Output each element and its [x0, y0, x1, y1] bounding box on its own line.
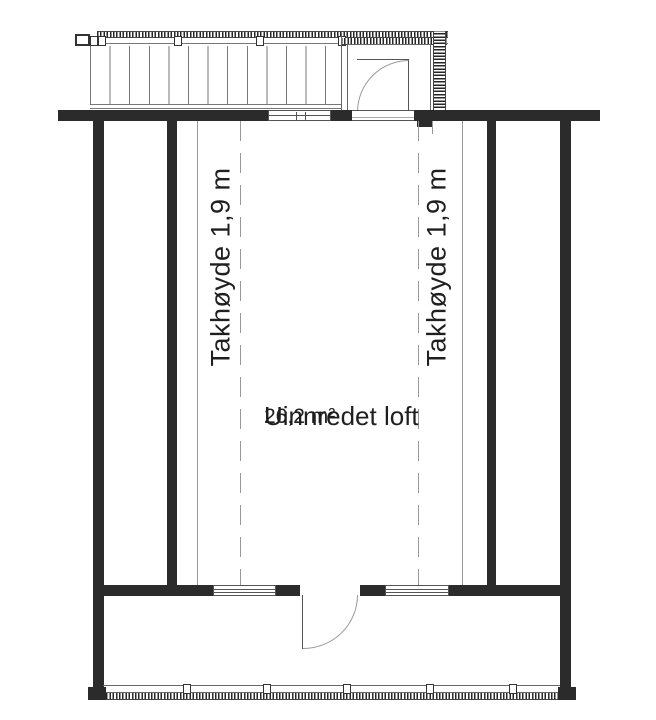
stair-edge-line — [90, 104, 341, 105]
window-glass-line — [214, 592, 275, 593]
ceiling-height-label-right: Takhøyde 1,9 m — [422, 167, 453, 366]
railing-post — [343, 684, 351, 694]
bottom-window-right — [385, 585, 449, 596]
left-wall-base — [88, 687, 106, 700]
bottom-interior-wall — [93, 585, 213, 596]
bottom-interior-wall — [360, 585, 385, 596]
stair-treads — [90, 46, 341, 104]
right-wall-base — [558, 687, 576, 700]
balcony-railing-line — [103, 685, 560, 686]
bottom-window-left — [213, 585, 276, 596]
railing-post — [426, 684, 434, 694]
entry-door-leaf — [408, 59, 409, 112]
floor-plan: Takhøyde 1,9 m Takhøyde 1,9 m Uinnredet … — [0, 0, 656, 720]
window-glass-line — [214, 589, 275, 590]
railing-post — [256, 36, 264, 46]
roof-slope-line-right — [462, 121, 463, 585]
vestibule-left-wall-line — [341, 33, 342, 111]
room-area-label: 26,2 m² — [264, 404, 335, 429]
balcony-door-leaf — [302, 595, 303, 649]
door-threshold-line — [352, 117, 414, 118]
window-mullion — [305, 112, 306, 120]
left-knee-wall — [167, 121, 177, 585]
balcony-door-swing-arc — [303, 595, 358, 649]
window-glass-line — [386, 589, 448, 590]
right-knee-wall — [487, 121, 496, 585]
vestibule-right-wall-hatch — [433, 31, 446, 121]
window-glass-line — [269, 115, 330, 116]
railing-post — [183, 684, 191, 694]
stair-railing-hatch — [97, 31, 448, 38]
left-exterior-wall — [93, 110, 104, 690]
stair-newel-post — [75, 34, 90, 46]
entry-door-landing-edge — [357, 59, 409, 60]
window-mullion — [296, 112, 297, 120]
top-wall-window — [268, 110, 331, 121]
railing-post — [90, 36, 98, 46]
window-glass-line — [386, 592, 448, 593]
roof-slope-line-left — [197, 121, 198, 585]
wall-stub — [417, 121, 433, 127]
ceiling-height-dashed-line-right — [418, 121, 419, 585]
railing-post — [174, 36, 182, 46]
bottom-interior-wall — [449, 585, 571, 596]
wall-stub-line — [432, 121, 433, 134]
ceiling-height-label-left: Takhøyde 1,9 m — [206, 167, 237, 366]
balcony-railing-hatch — [103, 693, 560, 700]
right-exterior-wall — [560, 110, 571, 690]
railing-post — [98, 36, 106, 46]
stair-edge-line — [90, 108, 341, 109]
bottom-interior-wall — [276, 585, 300, 596]
ceiling-height-dashed-line-left — [240, 121, 241, 585]
railing-post — [509, 684, 517, 694]
entry-door-opening — [352, 110, 414, 121]
railing-post — [263, 684, 271, 694]
